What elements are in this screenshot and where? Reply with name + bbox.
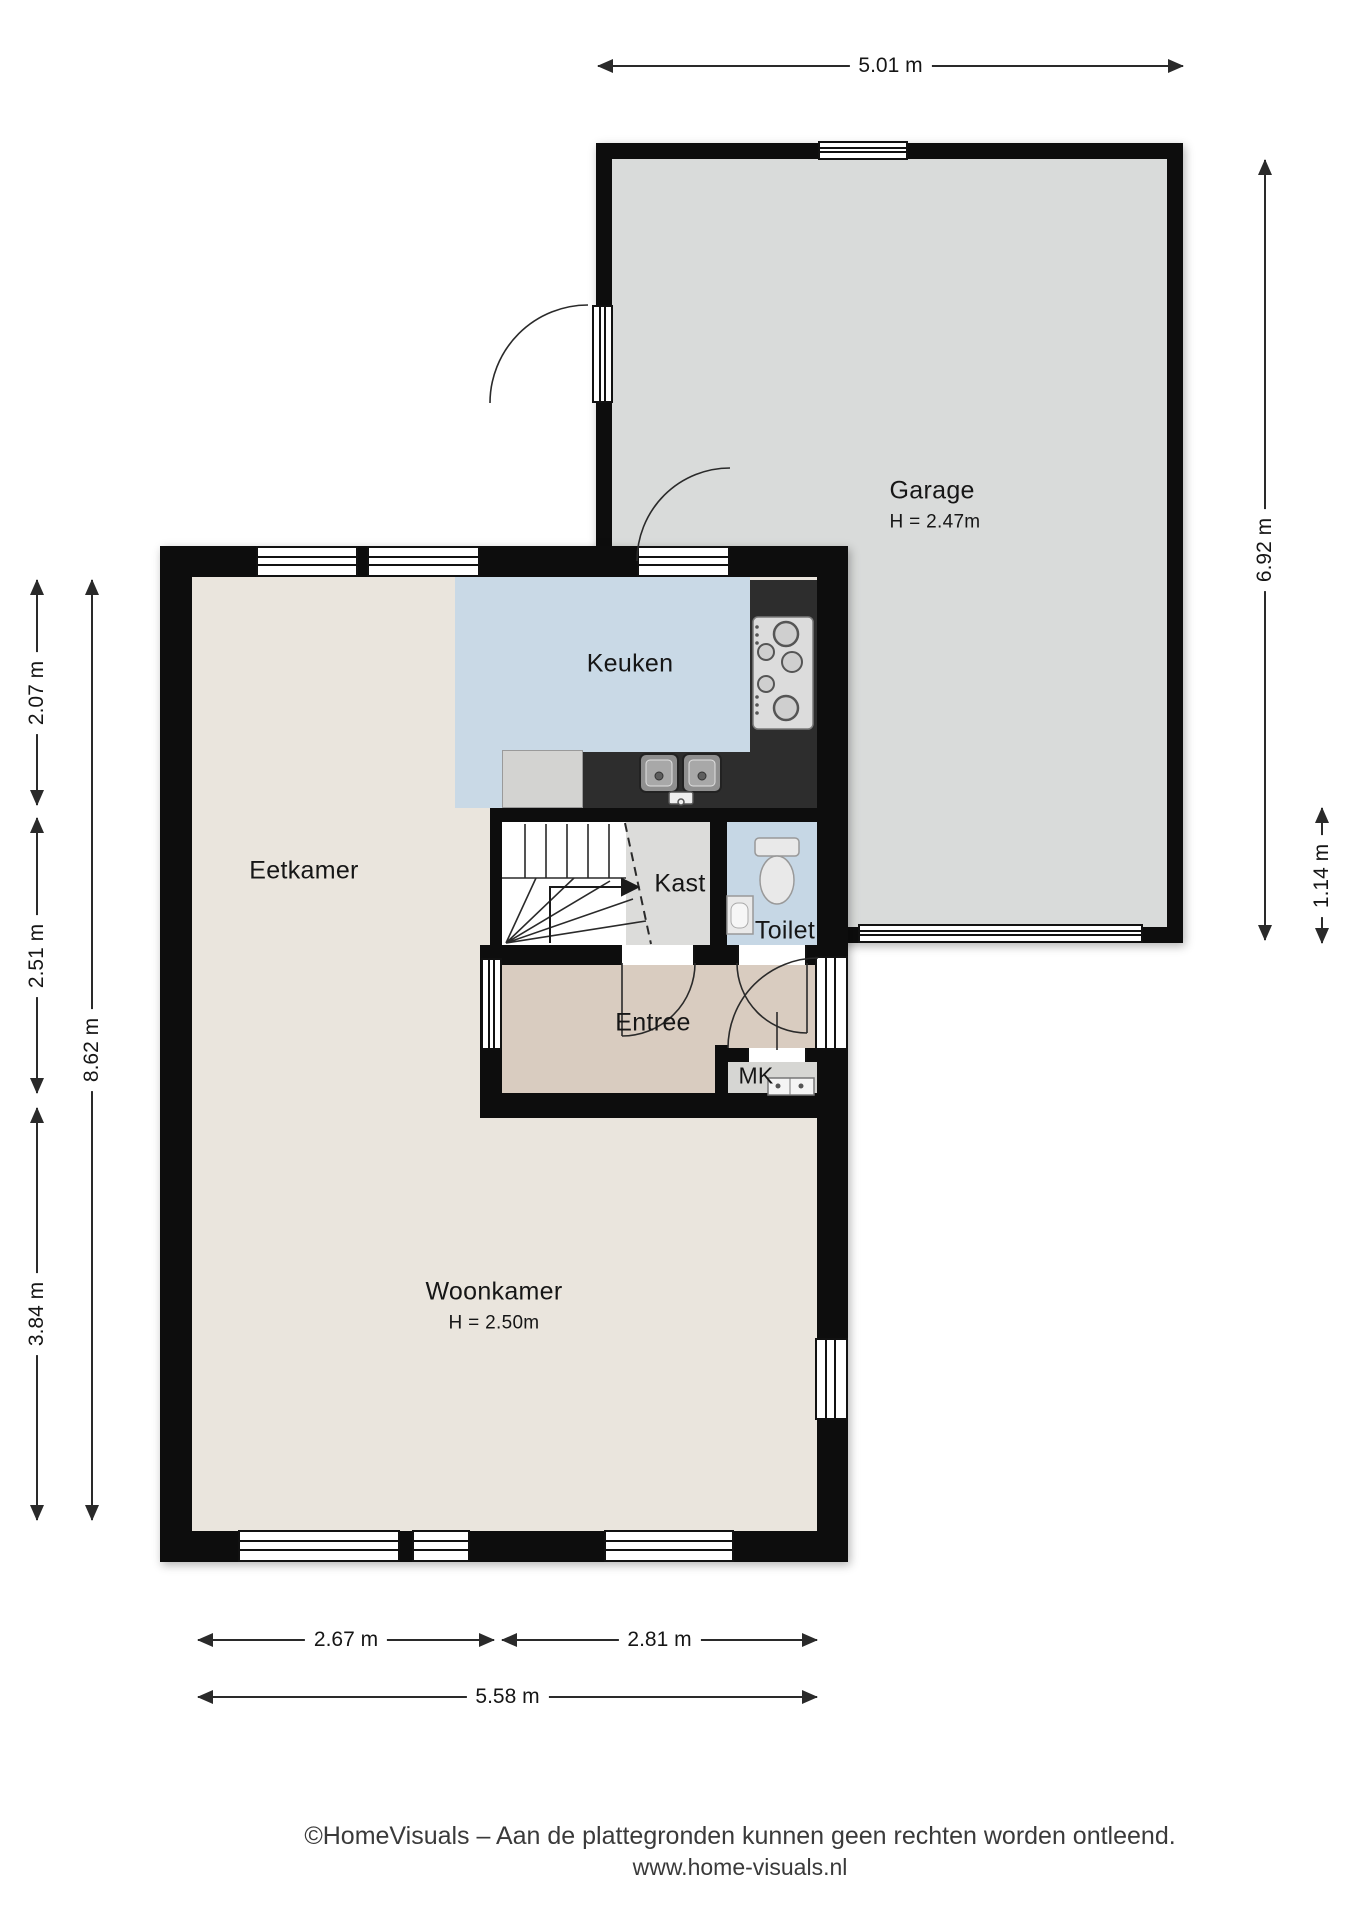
kast-label: Kast <box>654 870 705 899</box>
footer-url: www.home-visuals.nl <box>304 1853 1175 1883</box>
toilet-door-opening <box>737 945 807 965</box>
mk-door-opening <box>747 1048 807 1062</box>
dim-bottom-left: 2.67 m <box>198 1633 494 1647</box>
garage-side-door <box>592 305 613 403</box>
floorplan-page: 5.01 m 6.92 m 1.14 m 2.07 m 2.51 m 3.84 … <box>0 0 1358 1920</box>
eetkamer-top-window-right <box>367 546 480 577</box>
dim-left-upper-label: 2.07 m <box>24 651 50 733</box>
eetkamer-top-window-left <box>256 546 358 577</box>
eetkamer-label: Eetkamer <box>249 857 358 886</box>
footer: ©HomeVisuals – Aan de plattegronden kunn… <box>304 1820 1175 1882</box>
wall-entree-bottom <box>480 1093 848 1118</box>
dim-top-width-label: 5.01 m <box>849 53 931 79</box>
kast-name: Kast <box>654 870 705 898</box>
dim-left-middle: 2.51 m <box>30 818 44 1093</box>
woonkamer-ceiling-height: H = 2.50m <box>425 1313 562 1335</box>
dim-garage-offset: 1.14 m <box>1315 808 1329 943</box>
woonkamer-name: Woonkamer <box>425 1278 562 1306</box>
dim-bottom-total-label: 5.58 m <box>466 1684 548 1710</box>
dim-garage-height: 6.92 m <box>1258 160 1272 940</box>
dim-top-width: 5.01 m <box>598 59 1183 73</box>
wall-kast-toilet <box>710 822 727 945</box>
dim-left-lower-label: 3.84 m <box>24 1273 50 1355</box>
keuken-name: Keuken <box>587 650 674 678</box>
dim-bottom-right-label: 2.81 m <box>618 1627 700 1653</box>
wall-above-stairs <box>490 808 817 822</box>
garage-ceiling-height: H = 2.47m <box>890 512 981 534</box>
woonkamer-right-window <box>815 1338 848 1420</box>
stairs-floor <box>502 822 626 945</box>
dim-left-total: 8.62 m <box>85 580 99 1520</box>
woonkamer-bottom-window-right <box>604 1530 734 1562</box>
kitchen-appliance-block <box>502 750 583 808</box>
dim-left-upper: 2.07 m <box>30 580 44 805</box>
eetkamer-entree-glass-panel <box>481 958 502 1050</box>
dim-bottom-right: 2.81 m <box>502 1633 817 1647</box>
toilet-label: Toilet <box>755 917 815 946</box>
entree-label: Entree <box>615 1009 690 1038</box>
garage-name: Garage <box>890 477 975 505</box>
woonkamer-bottom-window-left-b <box>412 1530 470 1562</box>
garage-top-window <box>818 141 908 160</box>
dim-left-total-label: 8.62 m <box>79 1009 105 1091</box>
garage-side-door-arc <box>490 305 588 403</box>
front-door <box>815 956 848 1050</box>
woonkamer-label: Woonkamer H = 2.50m <box>425 1278 562 1335</box>
woonkamer-bottom-window-left-a <box>238 1530 400 1562</box>
keuken-garage-door <box>637 546 730 577</box>
dim-garage-offset-label: 1.14 m <box>1309 834 1335 916</box>
kitchen-counter-bottom <box>583 752 817 808</box>
toilet-name: Toilet <box>755 917 815 945</box>
mk-label: MK <box>738 1063 773 1090</box>
eetkamer-name: Eetkamer <box>249 857 358 885</box>
footer-copyright: ©HomeVisuals – Aan de plattegronden kunn… <box>304 1820 1175 1853</box>
dim-garage-height-label: 6.92 m <box>1252 509 1278 591</box>
dim-left-middle-label: 2.51 m <box>24 914 50 996</box>
garage-bottom-window <box>858 924 1143 943</box>
kast-door-opening <box>620 945 695 965</box>
garage-label: Garage H = 2.47m <box>890 477 981 534</box>
dim-bottom-left-label: 2.67 m <box>305 1627 387 1653</box>
mk-name: MK <box>738 1063 773 1089</box>
entree-name: Entree <box>615 1009 690 1037</box>
wall-stairs-left <box>490 808 502 965</box>
keuken-label: Keuken <box>587 650 674 679</box>
dim-bottom-total: 5.58 m <box>198 1690 817 1704</box>
dim-left-lower: 3.84 m <box>30 1108 44 1520</box>
